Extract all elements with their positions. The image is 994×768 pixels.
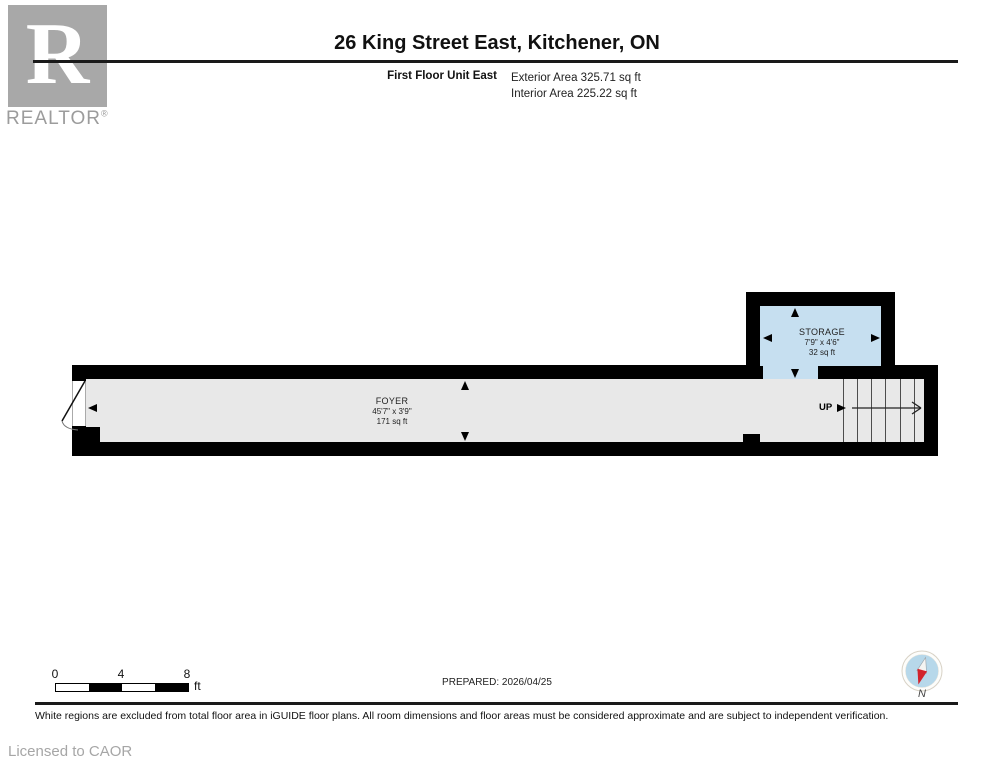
foyer-floor [86,379,924,442]
dimension-arrow-down-icon [461,432,469,441]
room-dimensions: 45'7" x 3'9" [342,407,442,417]
stair-riser-line [871,379,872,442]
dimension-arrow-right-icon [871,334,880,342]
room-area: 32 sq ft [772,348,872,358]
prepared-date: PREPARED: 2026/04/25 [397,677,597,688]
floor-name-label: First Floor Unit East [280,70,497,82]
compass-north-label: N [912,688,932,700]
dimension-arrow-left-icon [88,404,97,412]
stairs-up-label: UP [819,402,832,413]
room-label-storage: STORAGE 7'9" x 4'6" 32 sq ft [772,327,872,358]
room-area: 171 sq ft [342,417,442,427]
wall-stub-bottom [743,434,760,443]
scale-segment [122,684,155,691]
floorplan-page: R REALTOR® 26 King Street East, Kitchene… [0,0,994,768]
room-name: STORAGE [772,327,872,338]
license-text: Licensed to CAOR [8,743,132,760]
interior-area-value: Interior Area 225.22 sq ft [511,86,641,102]
page-title: 26 King Street East, Kitchener, ON [197,32,797,55]
stair-riser-line [914,379,915,442]
scale-segment [89,684,122,691]
header-divider [33,60,958,63]
compass-icon [901,650,943,692]
scale-tick-4: 4 [113,667,129,681]
realtor-wordmark: REALTOR® [6,108,146,130]
footer-divider [35,702,958,705]
room-dimensions: 7'9" x 4'6" [772,338,872,348]
scale-bar-icon [55,683,189,692]
room-name: FOYER [342,396,442,407]
scale-tick-8: 8 [179,667,195,681]
realtor-wordmark-text: REALTOR [6,108,101,129]
dimension-arrow-left-icon [763,334,772,342]
scale-segment [155,684,188,691]
stair-riser-line [900,379,901,442]
scale-tick-0: 0 [47,667,63,681]
up-arrow-icon [837,404,846,412]
area-summary: Exterior Area 325.71 sq ft Interior Area… [511,70,641,102]
stair-riser-line [857,379,858,442]
dimension-arrow-up-icon [791,308,799,317]
room-label-foyer: FOYER 45'7" x 3'9" 171 sq ft [342,396,442,427]
dimension-arrow-down-icon [791,369,799,378]
disclaimer-text: White regions are excluded from total fl… [35,710,980,722]
entry-door-opening [72,381,86,426]
scale-segment [56,684,89,691]
registered-mark: ® [101,109,109,119]
realtor-logo-letter: R [8,5,107,107]
wall-step-bottom-left [72,427,100,456]
scale-unit-label: ft [194,679,201,693]
stair-riser-line [885,379,886,442]
dimension-arrow-up-icon [461,381,469,390]
exterior-area-value: Exterior Area 325.71 sq ft [511,70,641,86]
realtor-logo: R [8,5,107,107]
